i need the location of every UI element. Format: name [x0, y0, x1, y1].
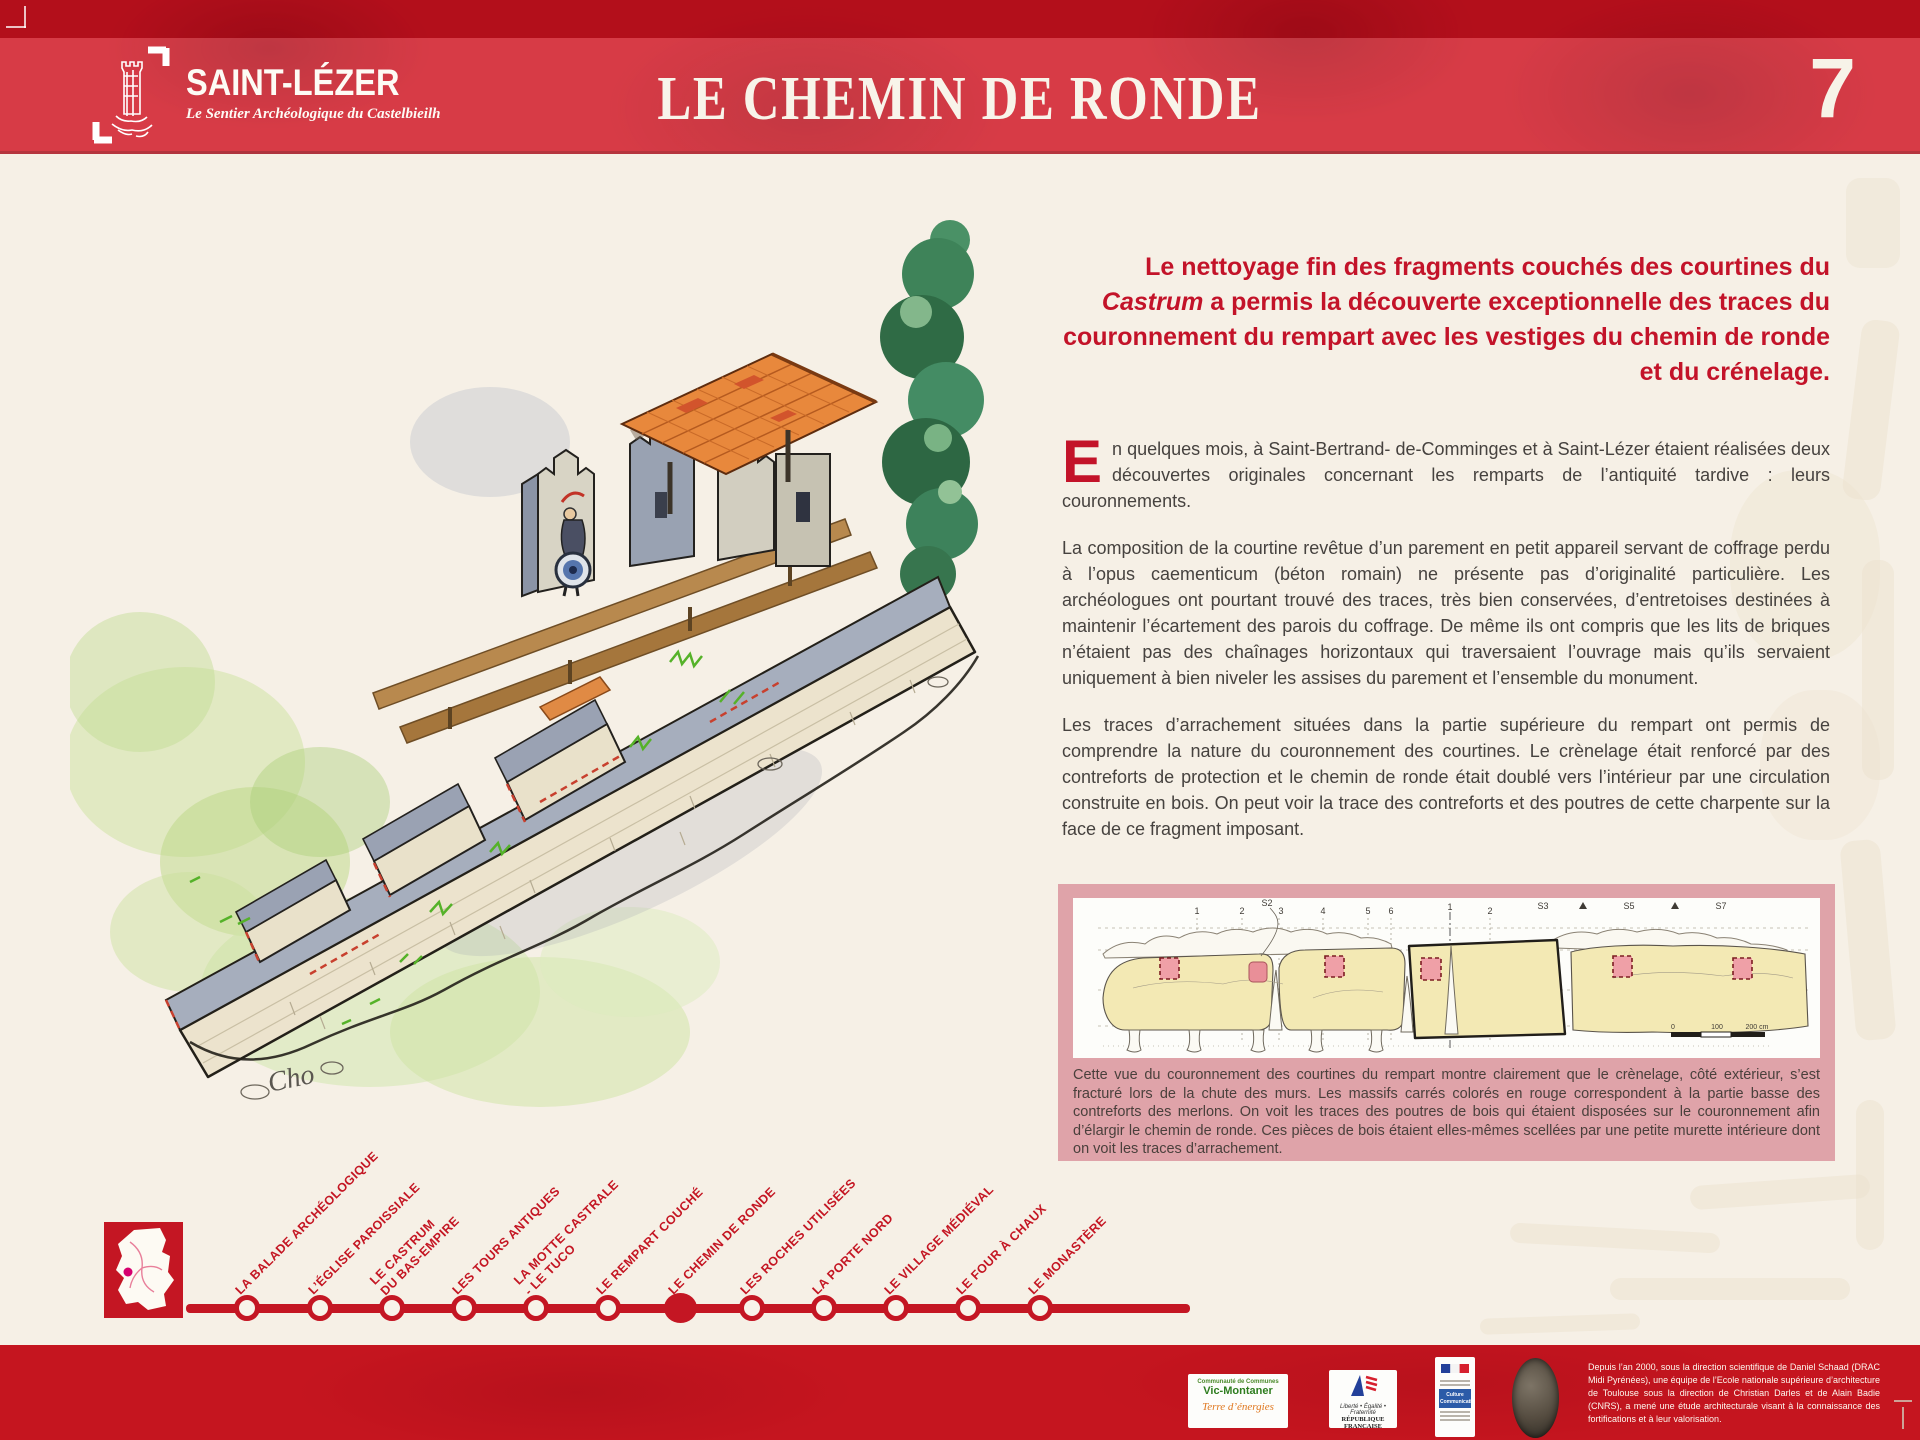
trail-timeline: LA BALADE ARCHÉOLOGIQUE L’ÉGLISE PAROISS…: [0, 1140, 1920, 1340]
svg-text:3: 3: [1278, 906, 1283, 916]
stop-dot-current[interactable]: [664, 1293, 697, 1323]
panel-number: 7: [1809, 40, 1856, 137]
watermark: [1839, 839, 1896, 1042]
header-top-strip: [0, 0, 1920, 38]
rampart-elevation-diagram: 1 2 S2 3 4 5 6 1 2 S3 S5 S7 0 100: [1073, 898, 1820, 1058]
lead-castrum: Castrum: [1102, 288, 1203, 316]
watermark: [1841, 318, 1901, 501]
svg-text:1: 1: [1194, 906, 1199, 916]
culture-drac-logo: Culture Communication: [1435, 1357, 1475, 1437]
svg-text:S5: S5: [1623, 901, 1634, 911]
ancient-coin-photo: [1512, 1358, 1559, 1438]
stop-dot[interactable]: [1027, 1295, 1053, 1321]
stop-dot[interactable]: [451, 1295, 477, 1321]
stop-label[interactable]: LA BALADE ARCHÉOLOGIQUE: [233, 1149, 382, 1298]
stop-dot[interactable]: [739, 1295, 765, 1321]
paragraph-1: En quelques mois, à Saint-Bertrand- de-C…: [1062, 436, 1830, 514]
svg-text:1: 1: [1447, 902, 1452, 912]
paragraph-2: La composition de la courtine revêtue d’…: [1062, 535, 1830, 691]
svg-text:S2: S2: [1261, 898, 1272, 908]
watermark: [1846, 178, 1900, 268]
stop-dot[interactable]: [811, 1295, 837, 1321]
panel-page: SAINT-LÉZER Le Sentier Archéologique du …: [0, 0, 1920, 1440]
figure-panel: 1 2 S2 3 4 5 6 1 2 S3 S5 S7 0 100: [1073, 898, 1820, 1058]
svg-text:200 cm: 200 cm: [1746, 1024, 1769, 1031]
svg-text:100: 100: [1711, 1024, 1723, 1031]
paragraph-1-text: n quelques mois, à Saint-Bertrand- de-Co…: [1062, 439, 1830, 511]
svg-text:4: 4: [1320, 906, 1325, 916]
republique-francaise-logo: Liberté • Égalité • Fraternité RÉPUBLIQU…: [1329, 1370, 1397, 1428]
svg-text:5: 5: [1365, 906, 1370, 916]
vic-montaner-logo: Communauté de Communes Vic-Montaner Terr…: [1188, 1374, 1288, 1428]
stop-label[interactable]: LES ROCHES UTILISÉES: [738, 1176, 860, 1298]
header-banner: SAINT-LÉZER Le Sentier Archéologique du …: [0, 0, 1920, 154]
vic-montaner-line2: Vic-Montaner: [1188, 1385, 1288, 1397]
bush: [880, 220, 984, 602]
culture-label: Culture Communication: [1439, 1389, 1471, 1408]
credits-text: Depuis l’an 2000, sous la direction scie…: [1588, 1361, 1880, 1426]
figure-box: 1 2 S2 3 4 5 6 1 2 S3 S5 S7 0 100: [1058, 884, 1835, 1161]
svg-text:S3: S3: [1537, 901, 1548, 911]
rf-name: RÉPUBLIQUE FRANÇAISE: [1329, 1416, 1397, 1428]
stop-label[interactable]: LE MONASTÈRE: [1026, 1214, 1110, 1298]
svg-text:2: 2: [1487, 906, 1492, 916]
svg-text:2: 2: [1239, 906, 1244, 916]
stop-dot[interactable]: [883, 1295, 909, 1321]
stop-dot[interactable]: [307, 1295, 333, 1321]
stop-dot[interactable]: [379, 1295, 405, 1321]
crop-mark: [6, 26, 26, 28]
stop-dot[interactable]: [234, 1295, 260, 1321]
svg-text:6: 6: [1388, 906, 1393, 916]
rf-motto: Liberté • Égalité • Fraternité: [1329, 1404, 1397, 1416]
rampart-watercolor-illustration: Cho: [70, 162, 1010, 1112]
lead-part1: Le nettoyage fin des fragments couchés d…: [1145, 253, 1830, 281]
stop-dot[interactable]: [523, 1295, 549, 1321]
article-text: En quelques mois, à Saint-Bertrand- de-C…: [1062, 436, 1830, 863]
svg-text:S7: S7: [1715, 901, 1726, 911]
vic-montaner-line3: Terre d’énergies: [1188, 1401, 1288, 1413]
trail-map-icon: [104, 1222, 183, 1318]
crop-mark: [1902, 1407, 1904, 1429]
stop-dot[interactable]: [595, 1295, 621, 1321]
marianne-icon: [1343, 1372, 1383, 1398]
lead-paragraph: Le nettoyage fin des fragments couchés d…: [1040, 250, 1830, 390]
footer-strip: Communauté de Communes Vic-Montaner Terr…: [0, 1345, 1920, 1440]
paragraph-3: Les traces d’arrachement situées dans la…: [1062, 712, 1830, 842]
svg-text:0: 0: [1671, 1024, 1675, 1031]
crop-mark: [24, 6, 26, 28]
french-flag-icon: [1441, 1364, 1469, 1373]
page-title: LE CHEMIN DE RONDE: [658, 64, 1262, 135]
stop-dot[interactable]: [955, 1295, 981, 1321]
crop-mark: [1894, 1400, 1912, 1402]
drop-cap: E: [1062, 440, 1102, 484]
